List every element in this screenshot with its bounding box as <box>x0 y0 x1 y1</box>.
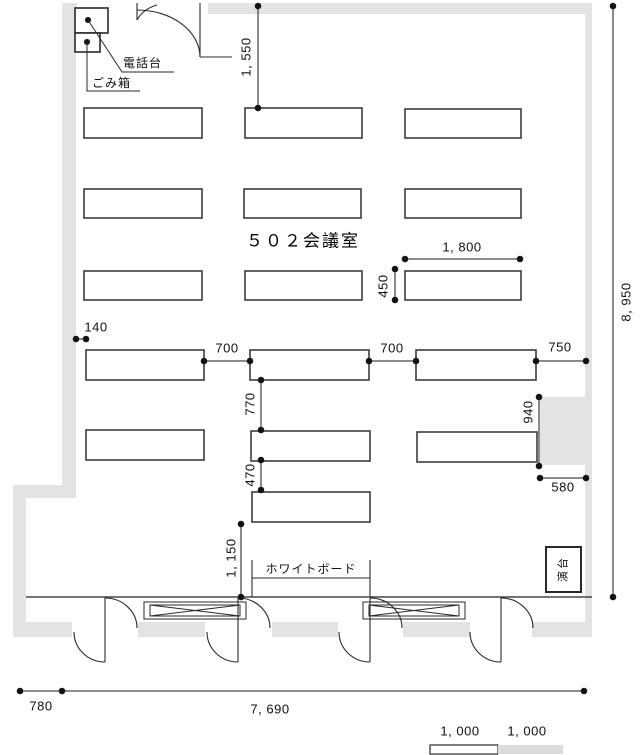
door4-swing-out <box>470 632 501 662</box>
dim-label-770: 770 <box>244 392 257 415</box>
wall-left-lower <box>13 485 26 637</box>
table-row2-left <box>84 189 202 218</box>
dim-label-1550: 1, 550 <box>240 37 253 76</box>
table-row3-left <box>84 271 202 300</box>
dim-label-8950: 8, 950 <box>620 282 633 321</box>
scale-bar-white <box>430 745 498 754</box>
table-row2-mid <box>244 189 361 218</box>
wall-left-upper <box>62 3 76 498</box>
wall-bottom-seg3 <box>272 622 338 637</box>
table-row5-mid <box>251 431 370 461</box>
table-row3-mid <box>245 271 362 300</box>
phone-stand-box <box>75 8 108 52</box>
dim-label-1150: 1, 150 <box>225 538 238 577</box>
dim-label-700b: 700 <box>380 342 403 355</box>
scale-label-2: 1, 000 <box>507 725 546 738</box>
door1-swing-in <box>105 598 137 628</box>
table-row4-left <box>86 350 204 380</box>
table-row6-mid <box>252 492 370 522</box>
dim-label-750: 750 <box>548 341 571 354</box>
trash-bin-label: ごみ箱 <box>92 77 131 89</box>
dim-label-940: 940 <box>522 400 535 423</box>
wall-bottom-seg2 <box>138 622 205 637</box>
table-row1-right <box>405 109 521 138</box>
door4-swing-in <box>501 598 533 628</box>
floor-plan: ５０２会議室 電話台 ごみ箱 ホワイトボード 演台 1, 800 700 700… <box>0 0 643 755</box>
dimension-lines <box>17 3 616 694</box>
scale-bar <box>430 745 563 754</box>
dim-label-1800: 1, 800 <box>442 241 481 254</box>
table-row1-mid <box>245 108 362 138</box>
table-row1-left <box>84 108 202 138</box>
door1-swing-out <box>74 632 105 662</box>
dim-label-580: 580 <box>551 481 574 494</box>
dim-label-450: 450 <box>377 274 390 297</box>
phone-stand-label: 電話台 <box>123 57 162 69</box>
wall-bottom-seg1 <box>13 622 72 637</box>
pillar <box>540 397 586 465</box>
dim-label-700a: 700 <box>215 342 238 355</box>
wall-bottom-seg4 <box>403 622 470 637</box>
crossed-panels <box>144 602 465 619</box>
table-row2-right <box>405 189 521 218</box>
table-row5-right <box>417 432 537 462</box>
wall-bottom-seg5 <box>532 622 592 637</box>
door3-swing-out <box>339 632 370 662</box>
floor-plan-svg <box>0 0 643 755</box>
entrance-door-leaf <box>137 5 157 20</box>
whiteboard-label: ホワイトボード <box>265 563 356 575</box>
door2-swing-out <box>207 632 238 662</box>
table-row3-right <box>405 271 521 300</box>
room-title: ５０２会議室 <box>246 233 360 250</box>
table-row4-mid <box>250 350 369 380</box>
podium-label: 演台 <box>559 556 570 582</box>
scale-label-1: 1, 000 <box>440 725 479 738</box>
dim-label-780: 780 <box>29 700 52 713</box>
table-row5-left <box>86 430 204 460</box>
scale-bar-gray <box>498 745 563 754</box>
table-row4-right <box>416 350 536 380</box>
dim-label-470: 470 <box>244 463 257 486</box>
dim-label-140: 140 <box>84 321 107 334</box>
dim-label-7690: 7, 690 <box>250 703 289 716</box>
wall-top <box>208 3 592 14</box>
wall-right <box>585 3 592 637</box>
tables <box>84 108 537 522</box>
entrance-door-swing-arc <box>137 10 200 57</box>
